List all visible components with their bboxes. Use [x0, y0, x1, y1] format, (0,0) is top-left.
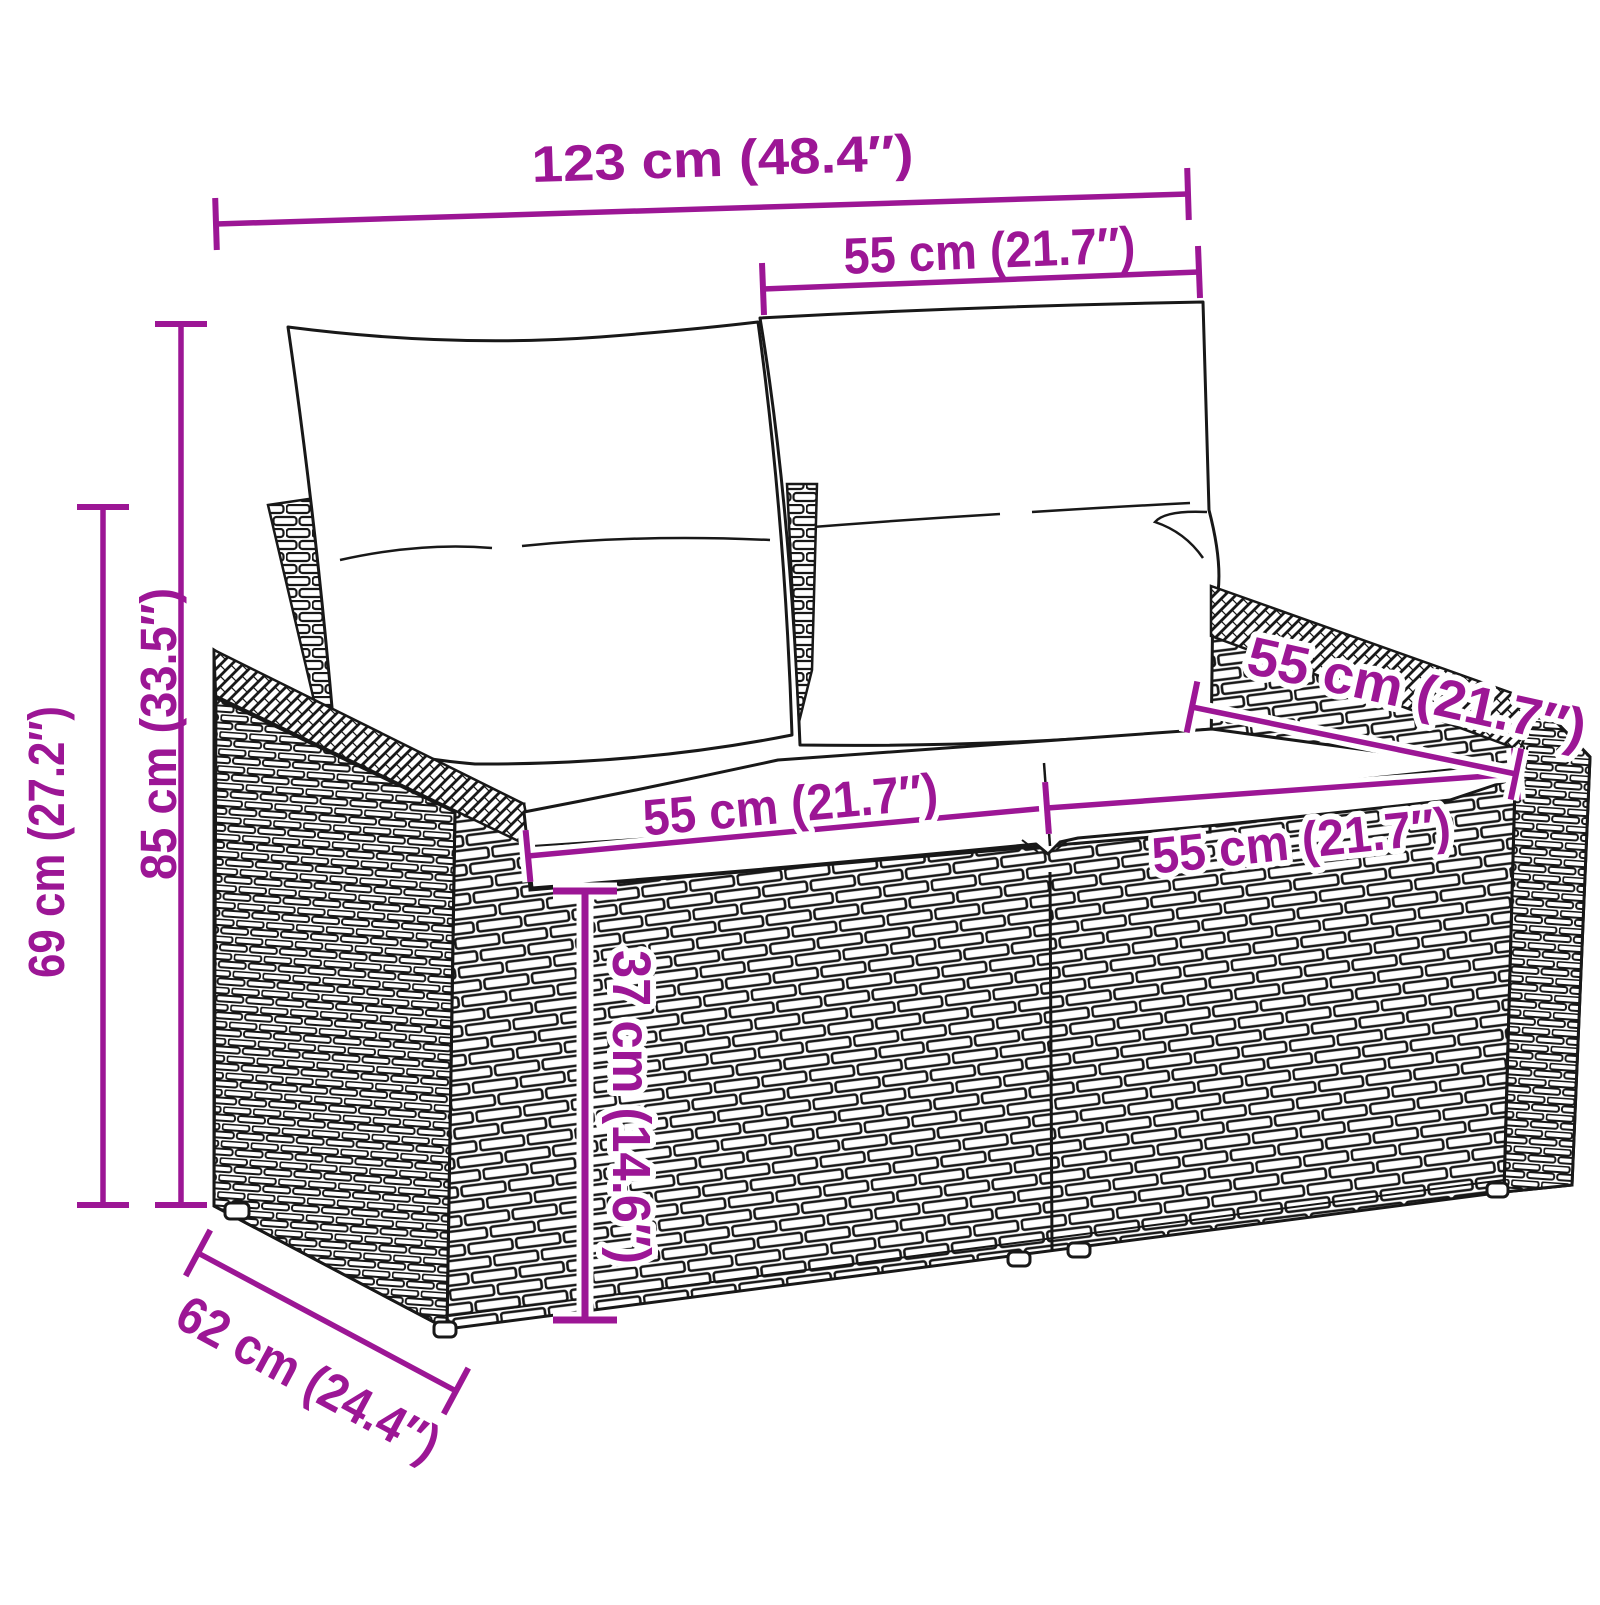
svg-text:85 cm (33.5″): 85 cm (33.5″): [130, 588, 187, 880]
svg-text:55 cm (21.7″): 55 cm (21.7″): [842, 216, 1136, 285]
svg-text:123 cm (48.4″): 123 cm (48.4″): [531, 124, 915, 193]
svg-text:37 cm (14.6″): 37 cm (14.6″): [601, 950, 661, 1264]
svg-text:69 cm (27.2″): 69 cm (27.2″): [18, 706, 75, 978]
